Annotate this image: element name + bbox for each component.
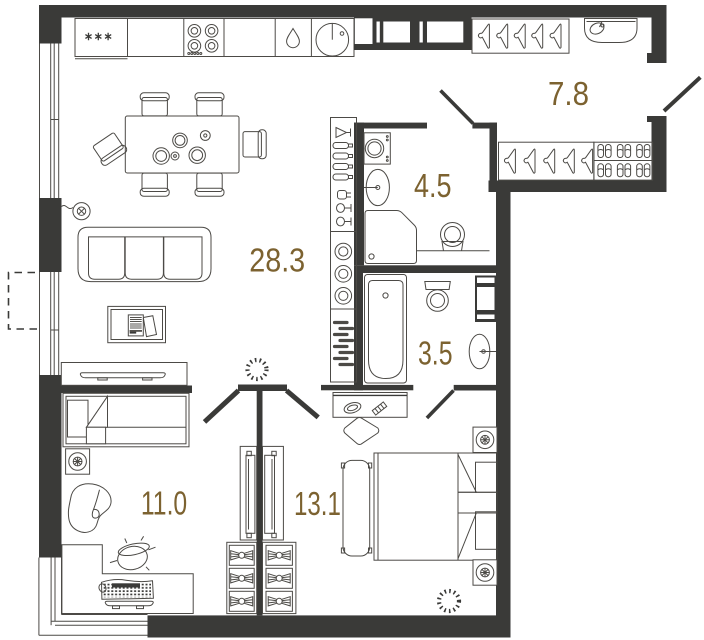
svg-text:11.0: 11.0 xyxy=(141,484,187,521)
svg-text:7.8: 7.8 xyxy=(548,75,589,112)
svg-text:4.5: 4.5 xyxy=(414,167,452,204)
svg-text:28.3: 28.3 xyxy=(249,242,305,279)
svg-text:13.1: 13.1 xyxy=(294,485,341,522)
svg-text:3.5: 3.5 xyxy=(418,335,453,372)
